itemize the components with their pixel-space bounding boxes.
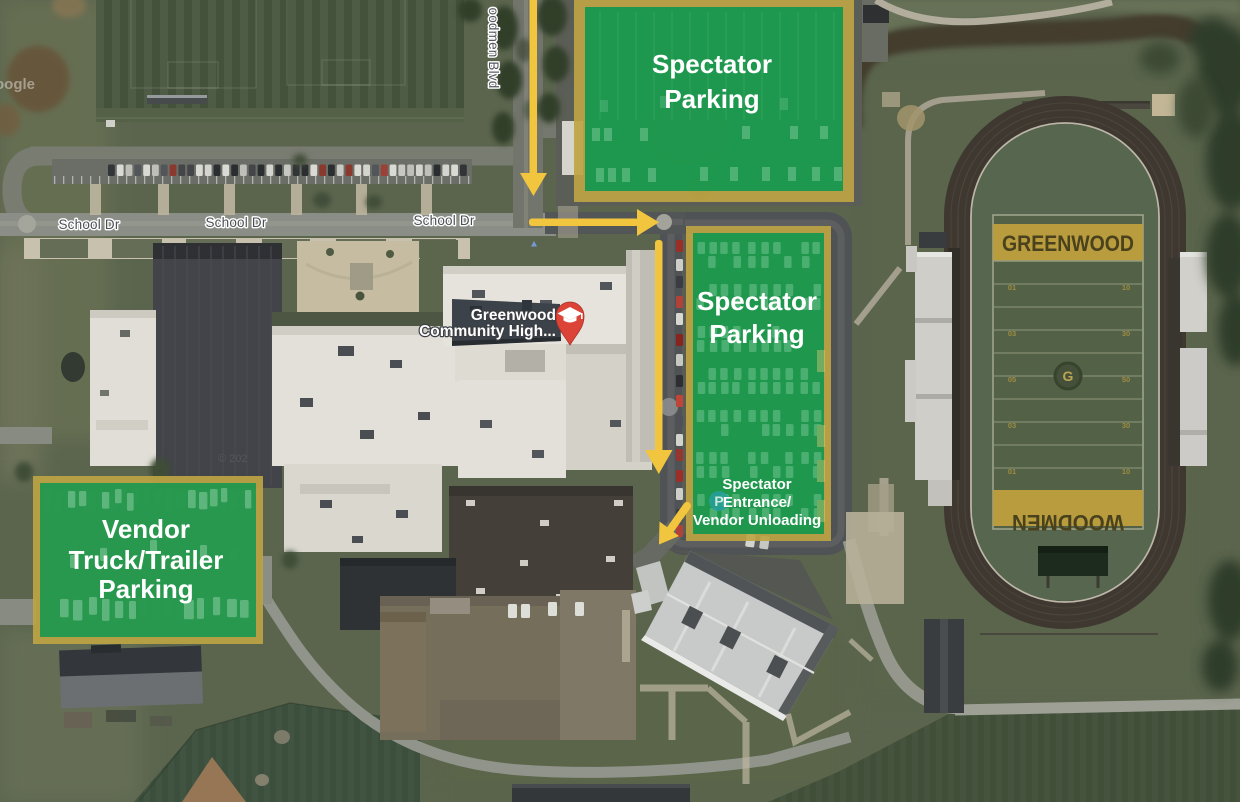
- svg-text:oogle: oogle: [0, 76, 35, 93]
- svg-text:Parking: Parking: [664, 84, 759, 114]
- svg-text:Parking: Parking: [98, 574, 193, 604]
- svg-text:Greenwood: Greenwood: [471, 307, 556, 324]
- svg-text:Entrance/: Entrance/: [723, 494, 792, 511]
- svg-text:Parking: Parking: [709, 319, 804, 349]
- svg-text:School Dr: School Dr: [205, 215, 266, 230]
- svg-text:Spectator: Spectator: [652, 49, 772, 79]
- svg-text:oodmen Blvd: oodmen Blvd: [486, 8, 501, 89]
- svg-text:Spectator: Spectator: [697, 286, 817, 316]
- svg-text:Spectator: Spectator: [722, 476, 791, 493]
- svg-text:Community High...: Community High...: [419, 323, 556, 340]
- svg-text:School Dr: School Dr: [413, 213, 474, 228]
- svg-text:Vendor Unloading: Vendor Unloading: [693, 512, 821, 529]
- svg-text:Vendor: Vendor: [102, 514, 190, 544]
- svg-text:Truck/Trailer: Truck/Trailer: [69, 545, 224, 575]
- svg-text:School Dr: School Dr: [58, 217, 119, 232]
